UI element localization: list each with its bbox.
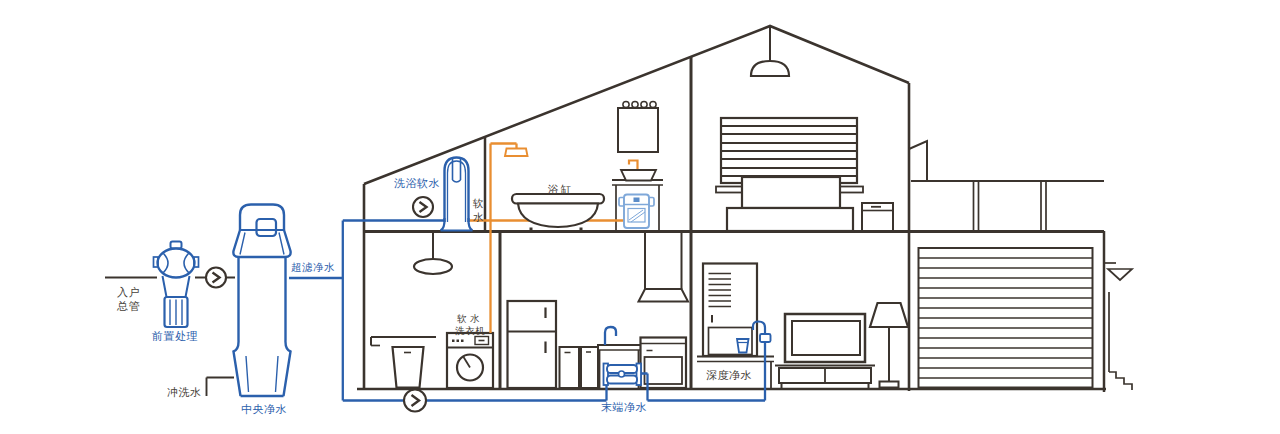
label-soft-washer-2: 洗衣机 [455, 325, 485, 336]
purifier-logo [634, 198, 640, 203]
terrace-rail-posts [974, 181, 1047, 231]
central-purifier [233, 205, 290, 397]
label-bathtub: 浴缸 [547, 183, 573, 195]
hood-duct [645, 233, 682, 289]
tv-screen [792, 321, 860, 355]
label-soft-water-v2: 水 [473, 211, 484, 223]
washer-button [461, 340, 464, 343]
label-central-purifier: 中央净水 [241, 403, 287, 415]
pre-filter-port [194, 257, 199, 267]
label-inlet-main-1: 入户 [117, 286, 140, 298]
flow-indicator-softener [413, 197, 433, 217]
faucet-valve [760, 334, 771, 342]
floor-lamp-shade [870, 303, 908, 327]
central-purifier-mask [235, 205, 289, 395]
refrigerator [508, 301, 557, 388]
flow-indicator-bottom [404, 390, 426, 412]
vanity-sink [621, 170, 656, 181]
label-soft-water-v1: 软 [472, 197, 484, 209]
label-flush-water: 冲洗水 [167, 386, 202, 398]
washer-button [452, 340, 455, 343]
bathtub [512, 194, 604, 232]
water-softener [441, 158, 473, 231]
bed-headboard [742, 177, 840, 208]
flow-indicator-inlet [206, 268, 226, 288]
label-ultra-filtration: 超滤净水 [291, 261, 335, 273]
label-deep-purifier: 深度净水 [706, 369, 752, 381]
kitchen-faucet-icon [605, 327, 616, 345]
bedroom [716, 26, 893, 231]
dispenser-vents [709, 274, 732, 307]
label-inlet-main-2: 总管 [116, 300, 140, 312]
pre-filter-head [158, 249, 195, 278]
pre-filter-port [154, 257, 159, 267]
label-terminal-purifier: 末端净水 [601, 401, 647, 413]
garage [909, 141, 1132, 392]
shower-head-icon [505, 149, 528, 157]
diagram-canvas: 入户 总管 前置处理 中央净水 冲洗水 超滤净水 洗浴软水 软 水 浴缸 软 水… [0, 0, 1280, 434]
floor-lamp-base [880, 382, 899, 388]
mirror-light-icon [623, 101, 629, 107]
terminal-ro-filter [604, 364, 642, 386]
bed [727, 208, 853, 231]
roller-door-slats [919, 258, 1093, 378]
mirror-light-icon [641, 101, 647, 107]
laundry-room [371, 231, 493, 388]
label-pre-treatment: 前置处理 [151, 330, 198, 342]
cabinet-handles [565, 352, 592, 353]
kitchen [508, 233, 689, 388]
mirror [618, 108, 658, 152]
washer-button [457, 340, 460, 343]
house-water-system-diagram: 入户 总管 前置处理 中央净水 冲洗水 超滤净水 洗浴软水 软 水 浴缸 软 水… [0, 0, 1280, 434]
bathtub-rim [512, 194, 604, 204]
pre-filter [154, 242, 199, 328]
downspout-and-steps [1109, 292, 1132, 390]
kitchen-cabinet [581, 347, 598, 388]
water-cup-icon [737, 339, 749, 353]
wall-lamp-icon [1108, 269, 1132, 280]
softener-mask [445, 159, 468, 229]
living-room [775, 303, 908, 389]
blind-slats [721, 126, 857, 176]
pendant-lamp-icon [751, 61, 789, 76]
mirror-light-icon [632, 101, 638, 107]
laundry-counter [371, 337, 436, 346]
range-hood [639, 289, 689, 302]
flush-water-pipe [207, 378, 235, 397]
label-bath-soft-water: 洗浴软水 [394, 177, 440, 189]
mirror-light-icon [650, 101, 656, 107]
under-sink-soft-water-purifier [619, 195, 654, 229]
bathtub-bowl [518, 204, 598, 228]
label-soft-washer-1: 软 水 [457, 313, 480, 324]
pendant-lamp-icon [414, 259, 452, 274]
ro-connector [619, 371, 625, 377]
terrace-end-wall [909, 141, 927, 181]
